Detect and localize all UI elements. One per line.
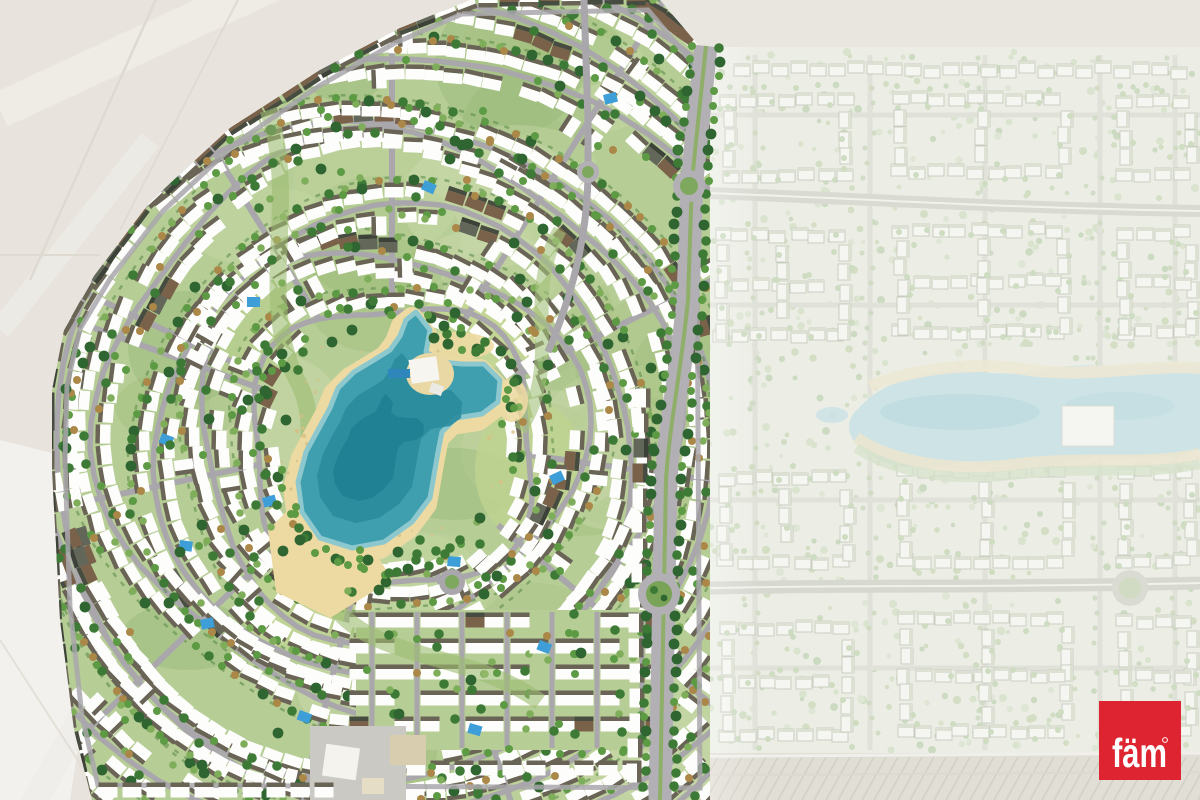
svg-text:fäm: fäm (1112, 730, 1167, 776)
